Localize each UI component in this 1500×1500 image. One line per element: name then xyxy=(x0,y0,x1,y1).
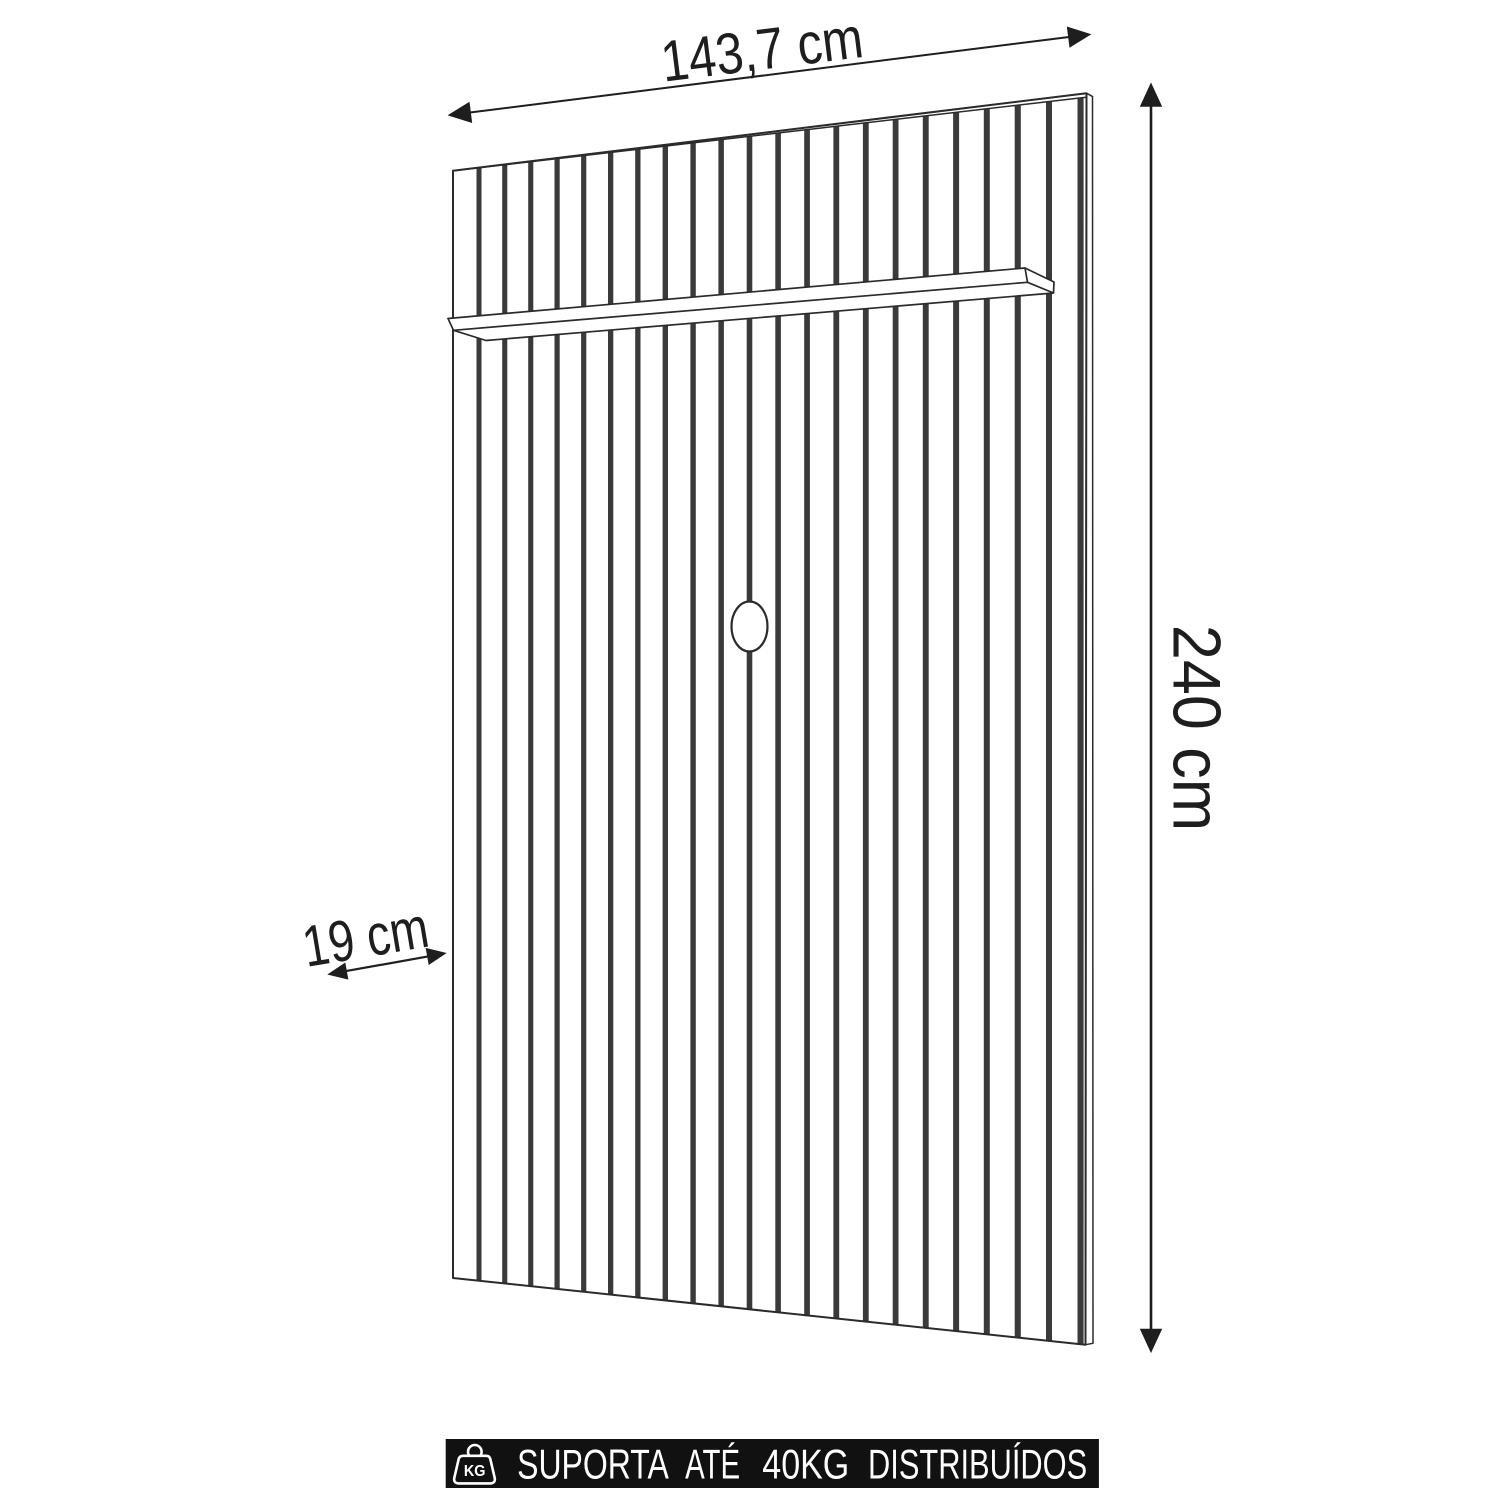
svg-text:DISTRIBUÍDOS: DISTRIBUÍDOS xyxy=(868,1441,1087,1488)
svg-text:KG: KG xyxy=(464,1462,486,1480)
svg-text:ATÉ: ATÉ xyxy=(685,1440,740,1488)
svg-text:40KG: 40KG xyxy=(762,1441,849,1488)
svg-text:SUPORTA: SUPORTA xyxy=(517,1440,669,1487)
svg-text:240 cm: 240 cm xyxy=(1159,625,1235,831)
